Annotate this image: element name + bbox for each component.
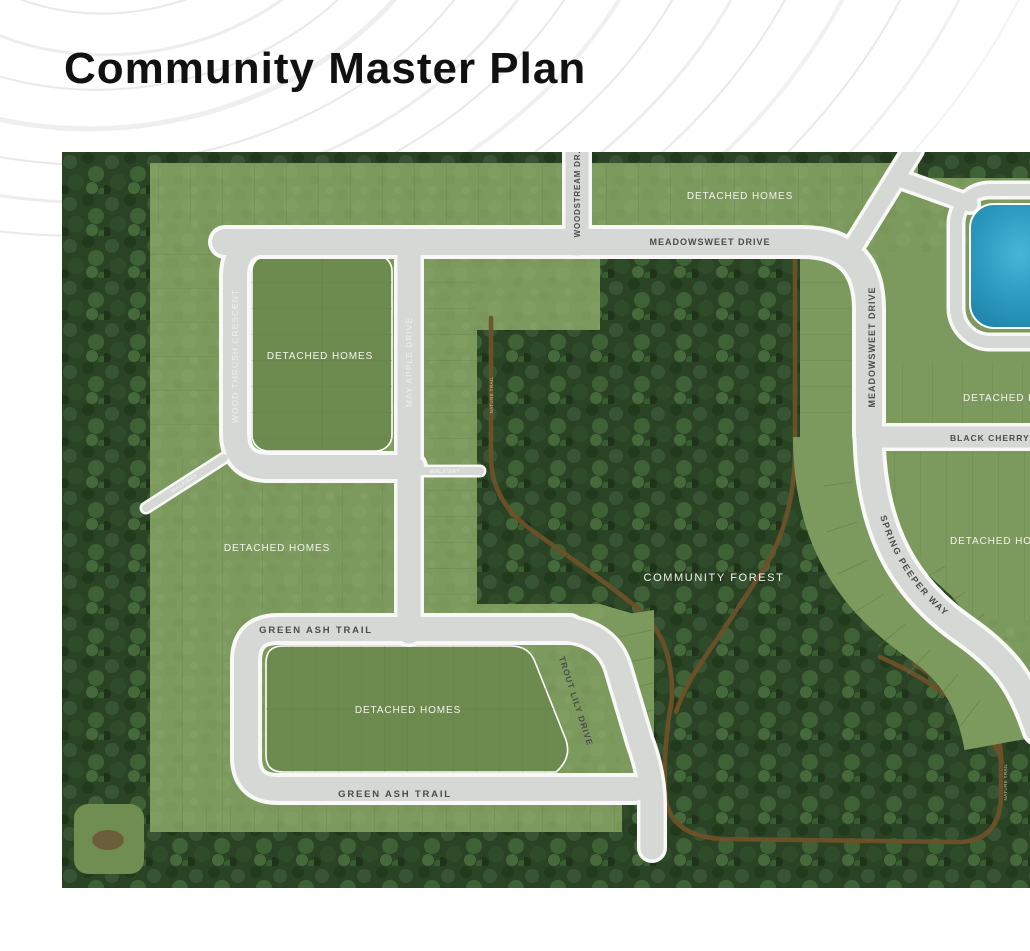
street-label-black-cherry: BLACK CHERRY <box>950 433 1030 443</box>
area-label-detached-homes-southeast: DETACHED HOMES <box>950 536 1030 547</box>
master-plan-map: DETACHED HOMES DETACHED HOMES DETACHED H… <box>62 152 1030 888</box>
street-label-walkway-central: WALKWAY <box>430 469 461 475</box>
street-label-may-apple-drive: MAY APPLE DRIVE <box>404 317 414 407</box>
lots-meadowsweet-west-lines <box>800 255 852 437</box>
area-label-detached-homes-south: DETACHED HOMES <box>355 705 461 716</box>
area-label-detached-homes-southwest: DETACHED HOMES <box>224 543 330 554</box>
lots-may-apple-east <box>426 258 476 610</box>
trail-label-nature-trail-east: NATURE TRAIL <box>1003 763 1008 800</box>
area-label-detached-homes-north: DETACHED HOMES <box>687 191 793 202</box>
page-title: Community Master Plan <box>64 44 586 94</box>
street-label-wood-thrush-crescent: WOOD THRUSH CRESCENT <box>230 289 240 423</box>
forest-west-strip <box>62 152 150 888</box>
forest-north-treeline <box>150 152 910 163</box>
trail-label-nature-trail-west: NATURE TRAIL <box>489 376 494 413</box>
area-label-detached-homes-west: DETACHED HOMES <box>267 351 373 362</box>
lots-south-strip <box>182 806 622 834</box>
street-label-green-ash-trail-north: GREEN ASH TRAIL <box>259 625 373 636</box>
clearing-dirt-patch <box>92 830 124 850</box>
street-label-green-ash-trail-south: GREEN ASH TRAIL <box>338 789 452 800</box>
lots-west-lower <box>150 612 226 834</box>
street-label-meadowsweet-drive-top: MEADOWSWEET DRIVE <box>649 237 770 247</box>
page: Community Master Plan <box>0 0 1030 951</box>
street-label-meadowsweet-drive-east: MEADOWSWEET DRIVE <box>867 286 877 407</box>
forest-northeast-corner <box>918 152 1030 178</box>
lots-west-strip <box>150 226 222 458</box>
lots-northwest <box>150 162 560 226</box>
area-label-community-forest: COMMUNITY FOREST <box>644 572 785 584</box>
street-label-woodstream-dr: WOODSTREAM DR. <box>573 152 582 237</box>
pond <box>970 204 1030 328</box>
area-label-detached-homes-east: DETACHED HOMES <box>963 393 1030 404</box>
